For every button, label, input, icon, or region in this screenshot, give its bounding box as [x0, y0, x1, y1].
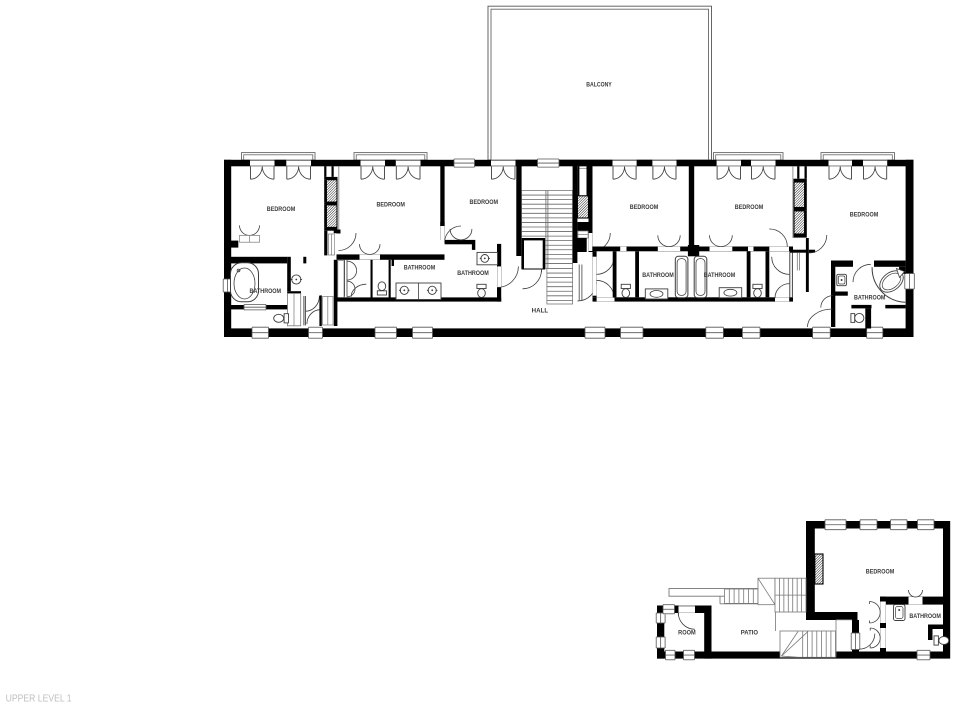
svg-text:BALCONY: BALCONY: [586, 82, 612, 89]
svg-text:BATHROOM: BATHROOM: [457, 270, 489, 277]
svg-text:PATIO: PATIO: [741, 629, 758, 636]
svg-text:BEDROOM: BEDROOM: [850, 212, 879, 219]
svg-text:ROOM: ROOM: [678, 629, 696, 636]
svg-text:BATHROOM: BATHROOM: [854, 295, 886, 302]
svg-text:BEDROOM: BEDROOM: [866, 568, 895, 575]
svg-text:BEDROOM: BEDROOM: [630, 204, 659, 211]
svg-text:BATHROOM: BATHROOM: [250, 288, 282, 295]
svg-text:BEDROOM: BEDROOM: [267, 206, 296, 213]
svg-text:BEDROOM: BEDROOM: [376, 202, 405, 209]
svg-text:BATHROOM: BATHROOM: [404, 265, 436, 272]
svg-text:BATHROOM: BATHROOM: [909, 613, 941, 620]
svg-text:UPPER LEVEL 1: UPPER LEVEL 1: [6, 693, 72, 705]
svg-text:BEDROOM: BEDROOM: [470, 199, 499, 206]
svg-text:HALL: HALL: [532, 308, 549, 315]
svg-text:BATHROOM: BATHROOM: [704, 272, 736, 279]
svg-text:BEDROOM: BEDROOM: [735, 204, 764, 211]
svg-text:BATHROOM: BATHROOM: [642, 272, 674, 279]
